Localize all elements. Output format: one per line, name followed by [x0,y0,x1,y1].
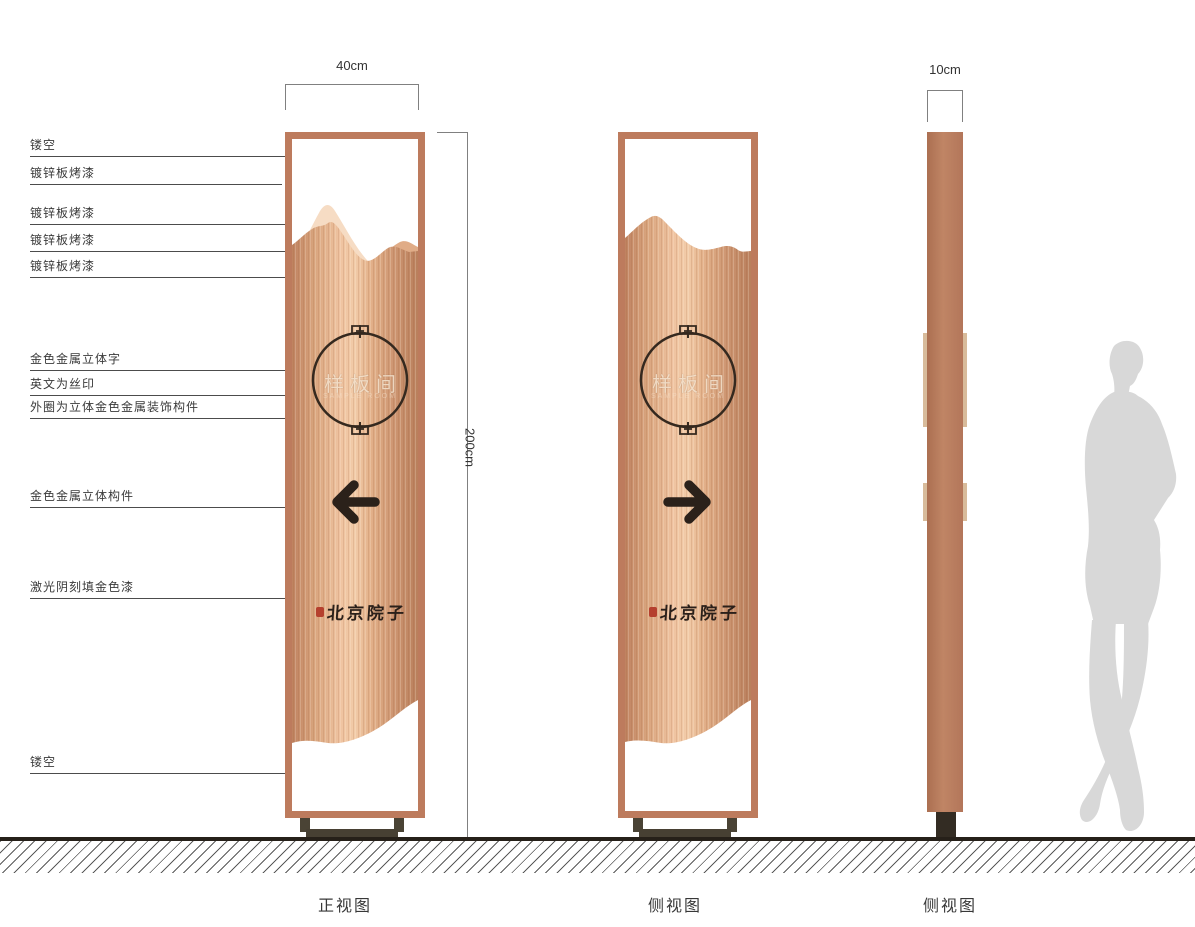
seal-stamp-icon [649,607,657,617]
side-profile-bar [927,132,963,812]
dimension-bracket-side [927,90,963,122]
dimension-height-tick [437,132,468,133]
side-notch [923,483,927,521]
middle-brand: 北京院子 [629,599,759,624]
dimension-width-front: 40cm [322,58,382,73]
front-brand: 北京院子 [296,599,426,624]
seal-stamp-icon [316,607,324,617]
callout-galvanized-2: 镀锌板烤漆 [30,204,322,225]
callout-hollow-top: 镂空 [30,136,305,157]
side-notch [963,483,967,521]
callout-hollow-bottom: 镂空 [30,753,300,774]
caption-side-view-2: 侧视图 [890,892,1010,916]
dimension-width-side: 10cm [915,62,975,77]
middle-brand-text: 北京院子 [659,599,741,624]
copper-panel-texture [625,216,751,743]
front-brand-text: 北京院子 [326,599,408,624]
dimension-height: 200cm [463,418,478,478]
dimension-bracket-front [285,84,419,110]
callout-galvanized-3: 镀锌板烤漆 [30,231,292,252]
side-profile-foot [936,812,956,838]
callout-outer-ring-gold: 外圈为立体金色金属装饰构件 [30,398,320,419]
caption-front-view: 正视图 [285,892,405,916]
callout-laser-engraved: 激光阴刻填金色漆 [30,578,287,599]
human-silhouette [1050,336,1195,843]
side-notch [963,333,967,427]
spec-sheet: 镂空 镀锌板烤漆 镀锌板烤漆 镀锌板烤漆 镀锌板烤漆 金色金属立体字 英文为丝印… [0,0,1195,927]
dimension-height-line [467,132,468,838]
middle-sign-artwork [625,139,751,811]
front-sign-artwork [292,139,418,811]
caption-side-view-1: 侧视图 [615,892,735,916]
callout-galvanized-4: 镀锌板烤漆 [30,257,292,278]
ground-hatch [0,841,1195,873]
front-circle-subtext: SAMPLE ROOM [305,393,415,400]
side-notch [923,333,927,427]
callout-galvanized-1: 镀锌板烤漆 [30,164,282,185]
middle-circle-subtext: SAMPLE ROOM [633,393,743,400]
